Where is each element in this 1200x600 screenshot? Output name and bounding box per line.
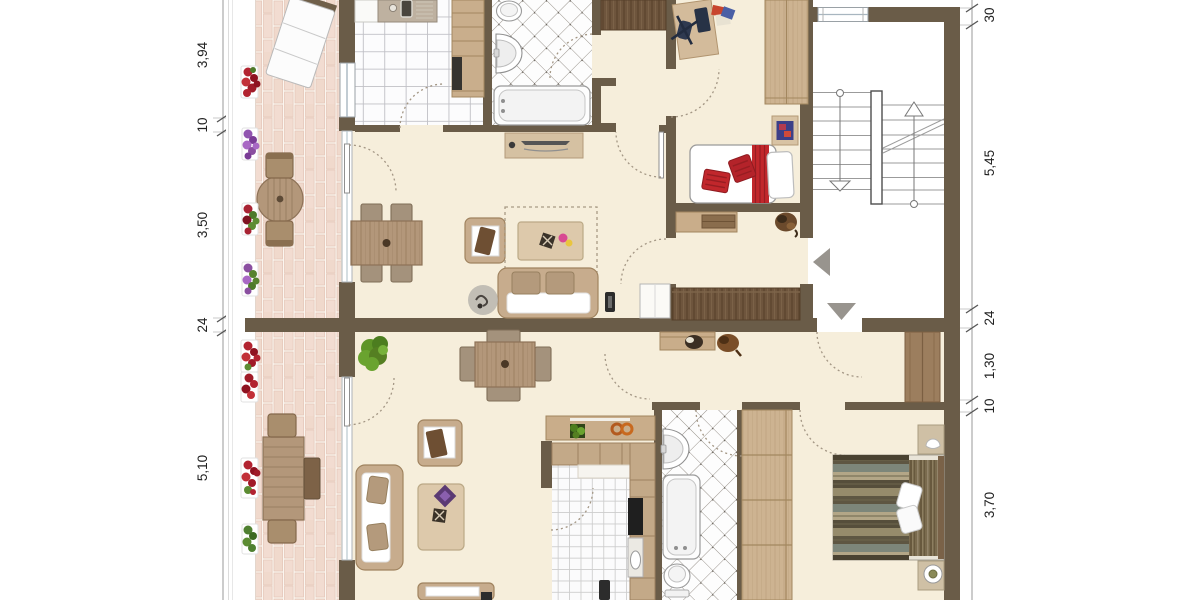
svg-text:30: 30 — [982, 7, 997, 22]
svg-text:5,10: 5,10 — [195, 455, 210, 481]
svg-text:3,70: 3,70 — [982, 492, 997, 518]
svg-text:5,45: 5,45 — [982, 150, 997, 176]
svg-text:3,50: 3,50 — [195, 212, 210, 238]
svg-text:24: 24 — [982, 310, 997, 326]
svg-text:1,30: 1,30 — [982, 353, 997, 379]
svg-text:24: 24 — [195, 317, 210, 333]
svg-text:10: 10 — [982, 398, 997, 413]
svg-text:3,94: 3,94 — [195, 41, 210, 68]
svg-text:10: 10 — [195, 117, 210, 132]
